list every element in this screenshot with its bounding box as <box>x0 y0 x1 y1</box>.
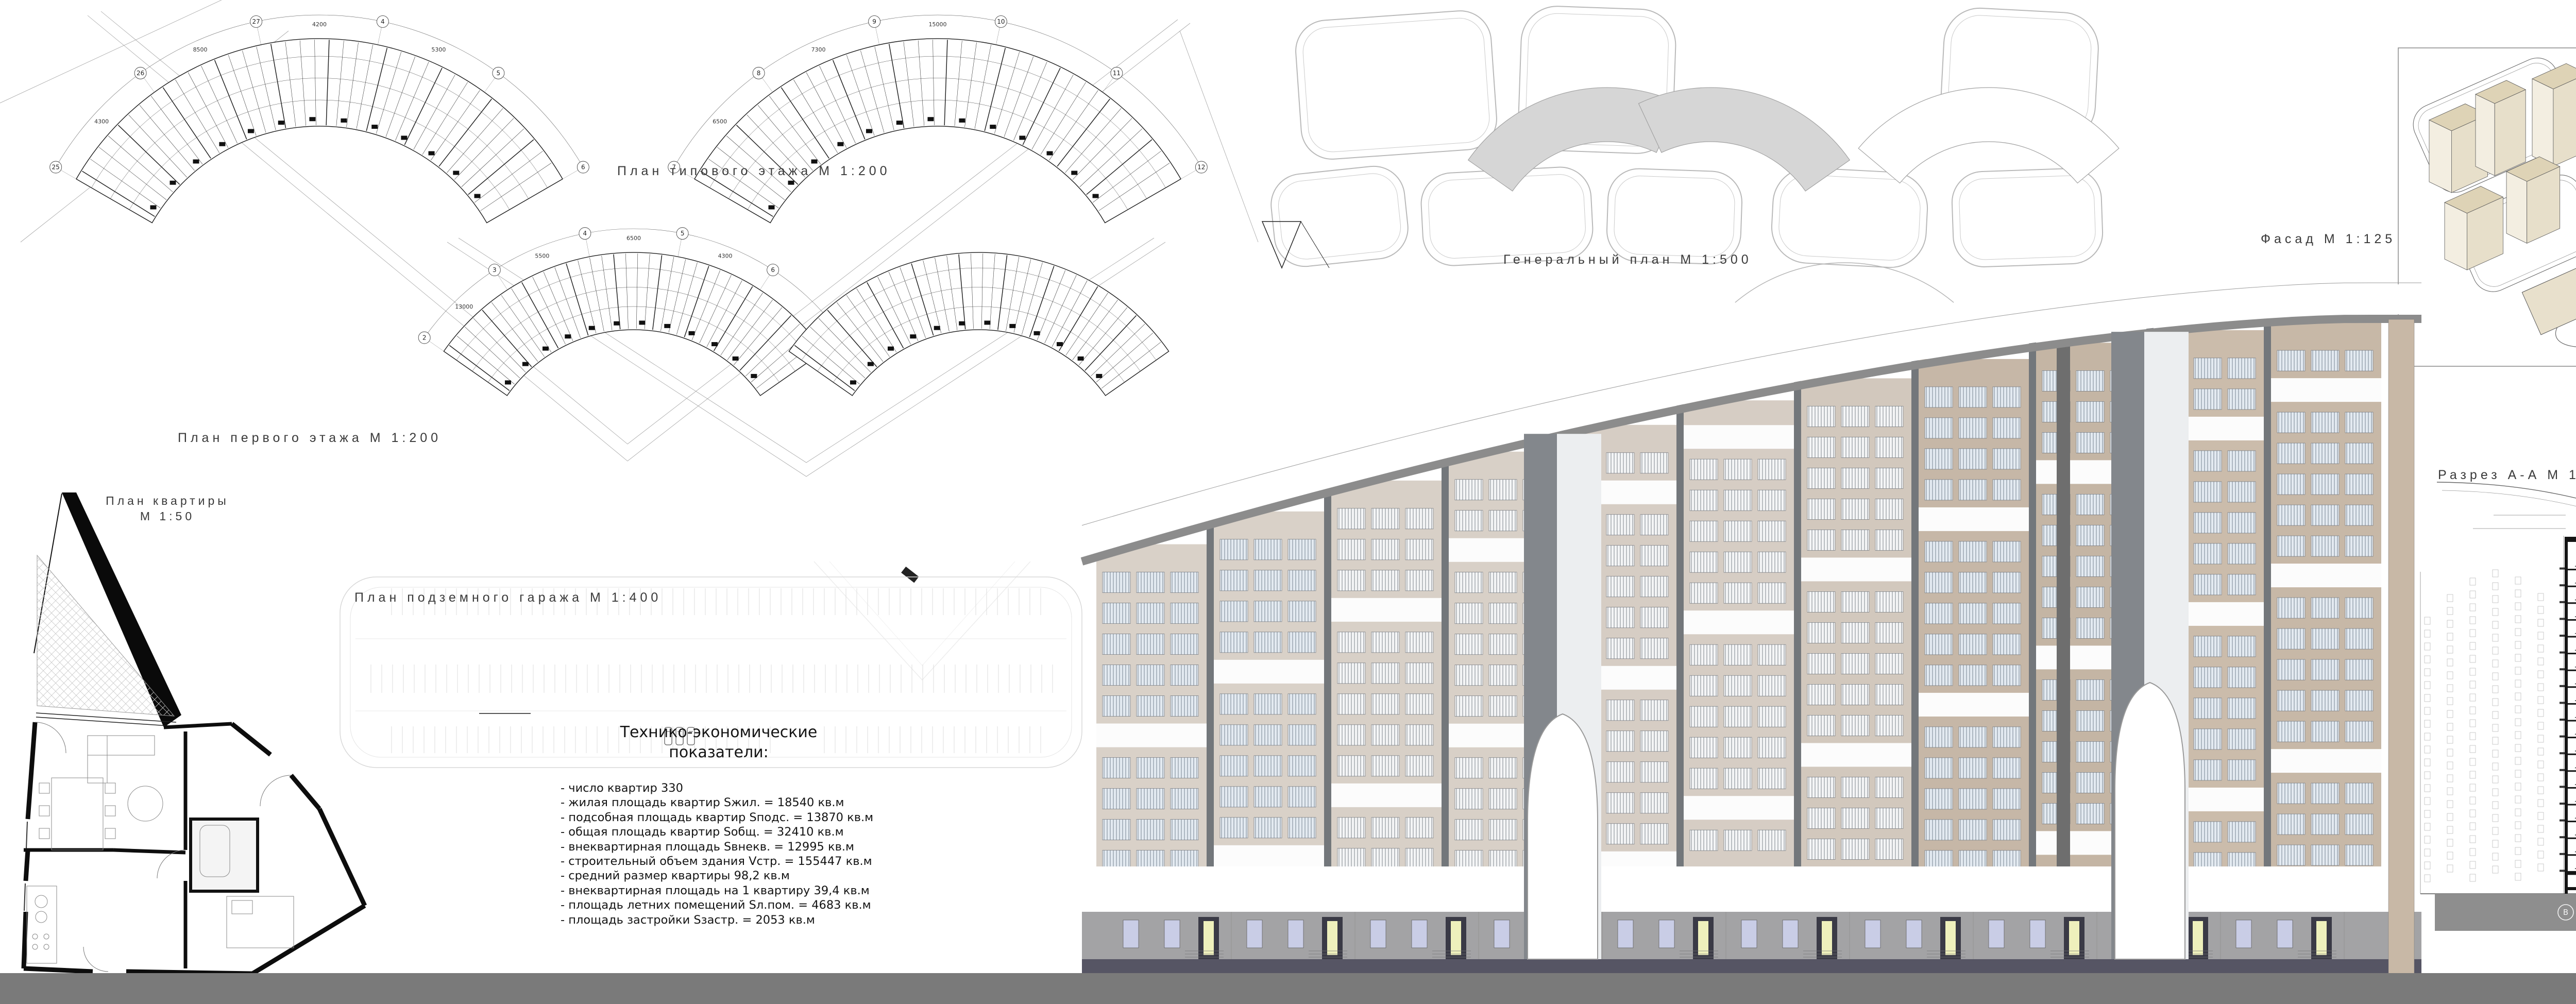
apartment-plan-label: План квартиры М 1:50 <box>98 493 237 524</box>
tech-indicator-item: - подсобная площадь квартир Sподс. = 138… <box>561 810 873 825</box>
svg-text:8: 8 <box>757 70 761 77</box>
svg-text:27: 27 <box>252 18 260 25</box>
svg-text:4200: 4200 <box>312 21 327 28</box>
svg-text:4: 4 <box>381 18 385 25</box>
svg-text:6: 6 <box>581 164 585 171</box>
general-plan-drawing <box>1252 0 2117 268</box>
tech-indicator-item: - площадь летних помещений Sл.пом. = 468… <box>561 898 873 912</box>
svg-text:25: 25 <box>52 164 60 171</box>
footer-bar: МНОГОЭТАЖНЫЙ ЖИЛОЙ ДОМ СЕКЦИОННОГО ТИПА … <box>0 973 2576 1004</box>
section-a-a-drawing: +62.700+59.400+56.100+52.800+49.500+46.2… <box>2411 479 2576 968</box>
tech-indicator-item: - внеквартирная площадь Sвнекв. = 12995 … <box>561 840 873 854</box>
svg-text:В: В <box>2563 908 2568 917</box>
tech-indicator-item: - строительный объем здания Vстр. = 1554… <box>561 854 873 869</box>
general-plan-label: Генеральный план М 1:500 <box>1503 252 1752 267</box>
first-floor-plan-label: План первого этажа М 1:200 <box>178 431 442 446</box>
facade-elevation-drawing <box>1082 273 2421 974</box>
svg-text:5: 5 <box>681 230 685 237</box>
svg-text:10: 10 <box>997 18 1005 25</box>
svg-text:4300: 4300 <box>718 253 733 260</box>
garage-plan-label: План подземного гаража М 1:400 <box>354 590 662 605</box>
svg-text:7300: 7300 <box>811 46 826 53</box>
svg-text:26: 26 <box>137 70 144 77</box>
svg-text:3: 3 <box>493 266 497 274</box>
tech-indicator-item: - средний размер квартиры 98,2 кв.м <box>561 869 873 883</box>
svg-text:13000: 13000 <box>455 303 473 310</box>
floor-plans-drawing: 2526274564300850042005300789101112650073… <box>0 0 1262 495</box>
svg-text:5300: 5300 <box>431 46 446 53</box>
apartment-plan-label-line1: План квартиры <box>98 493 237 508</box>
axonometric-3d-view <box>2398 48 2576 366</box>
svg-text:4300: 4300 <box>94 118 109 125</box>
tech-indicator-item: - общая площадь квартир Sобщ. = 32410 кв… <box>561 825 873 839</box>
tech-indicators-title-line2: показатели: <box>598 742 840 762</box>
typical-plan-label: План типового этажа М 1:200 <box>617 164 891 179</box>
tech-indicator-item: - площадь застройки Sзастр. = 2053 кв.м <box>561 913 873 927</box>
svg-text:5500: 5500 <box>535 253 549 260</box>
svg-text:15000: 15000 <box>929 21 947 28</box>
section-label: Разрез А-А М 1:200 <box>2438 468 2576 483</box>
svg-text:8500: 8500 <box>193 46 208 53</box>
tech-indicator-item: - жилая площадь квартир Sжил. = 18540 кв… <box>561 795 873 810</box>
svg-text:6500: 6500 <box>626 235 641 242</box>
svg-text:5: 5 <box>497 70 501 77</box>
tech-indicators-title: Технико-экономические показатели: <box>598 722 840 762</box>
presentation-board: 2526274564300850042005300789101112650073… <box>0 0 2576 1004</box>
svg-text:12: 12 <box>1197 164 1205 171</box>
svg-text:4: 4 <box>583 230 587 237</box>
apartment-plan-label-line2: М 1:50 <box>98 508 237 524</box>
svg-text:6500: 6500 <box>713 118 727 125</box>
svg-text:6: 6 <box>771 266 775 274</box>
svg-text:2: 2 <box>422 334 427 342</box>
tech-indicators-list: - число квартир 330- жилая площадь кварт… <box>561 781 873 927</box>
tech-indicator-item: - число квартир 330 <box>561 781 873 795</box>
tech-indicators-title-line1: Технико-экономические <box>598 722 840 742</box>
facade-label: Фасад М 1:125 <box>2261 232 2396 247</box>
svg-text:11: 11 <box>1113 70 1121 77</box>
svg-text:9: 9 <box>872 18 876 25</box>
tech-indicator-item: - внеквартирная площадь на 1 квартиру 39… <box>561 883 873 898</box>
